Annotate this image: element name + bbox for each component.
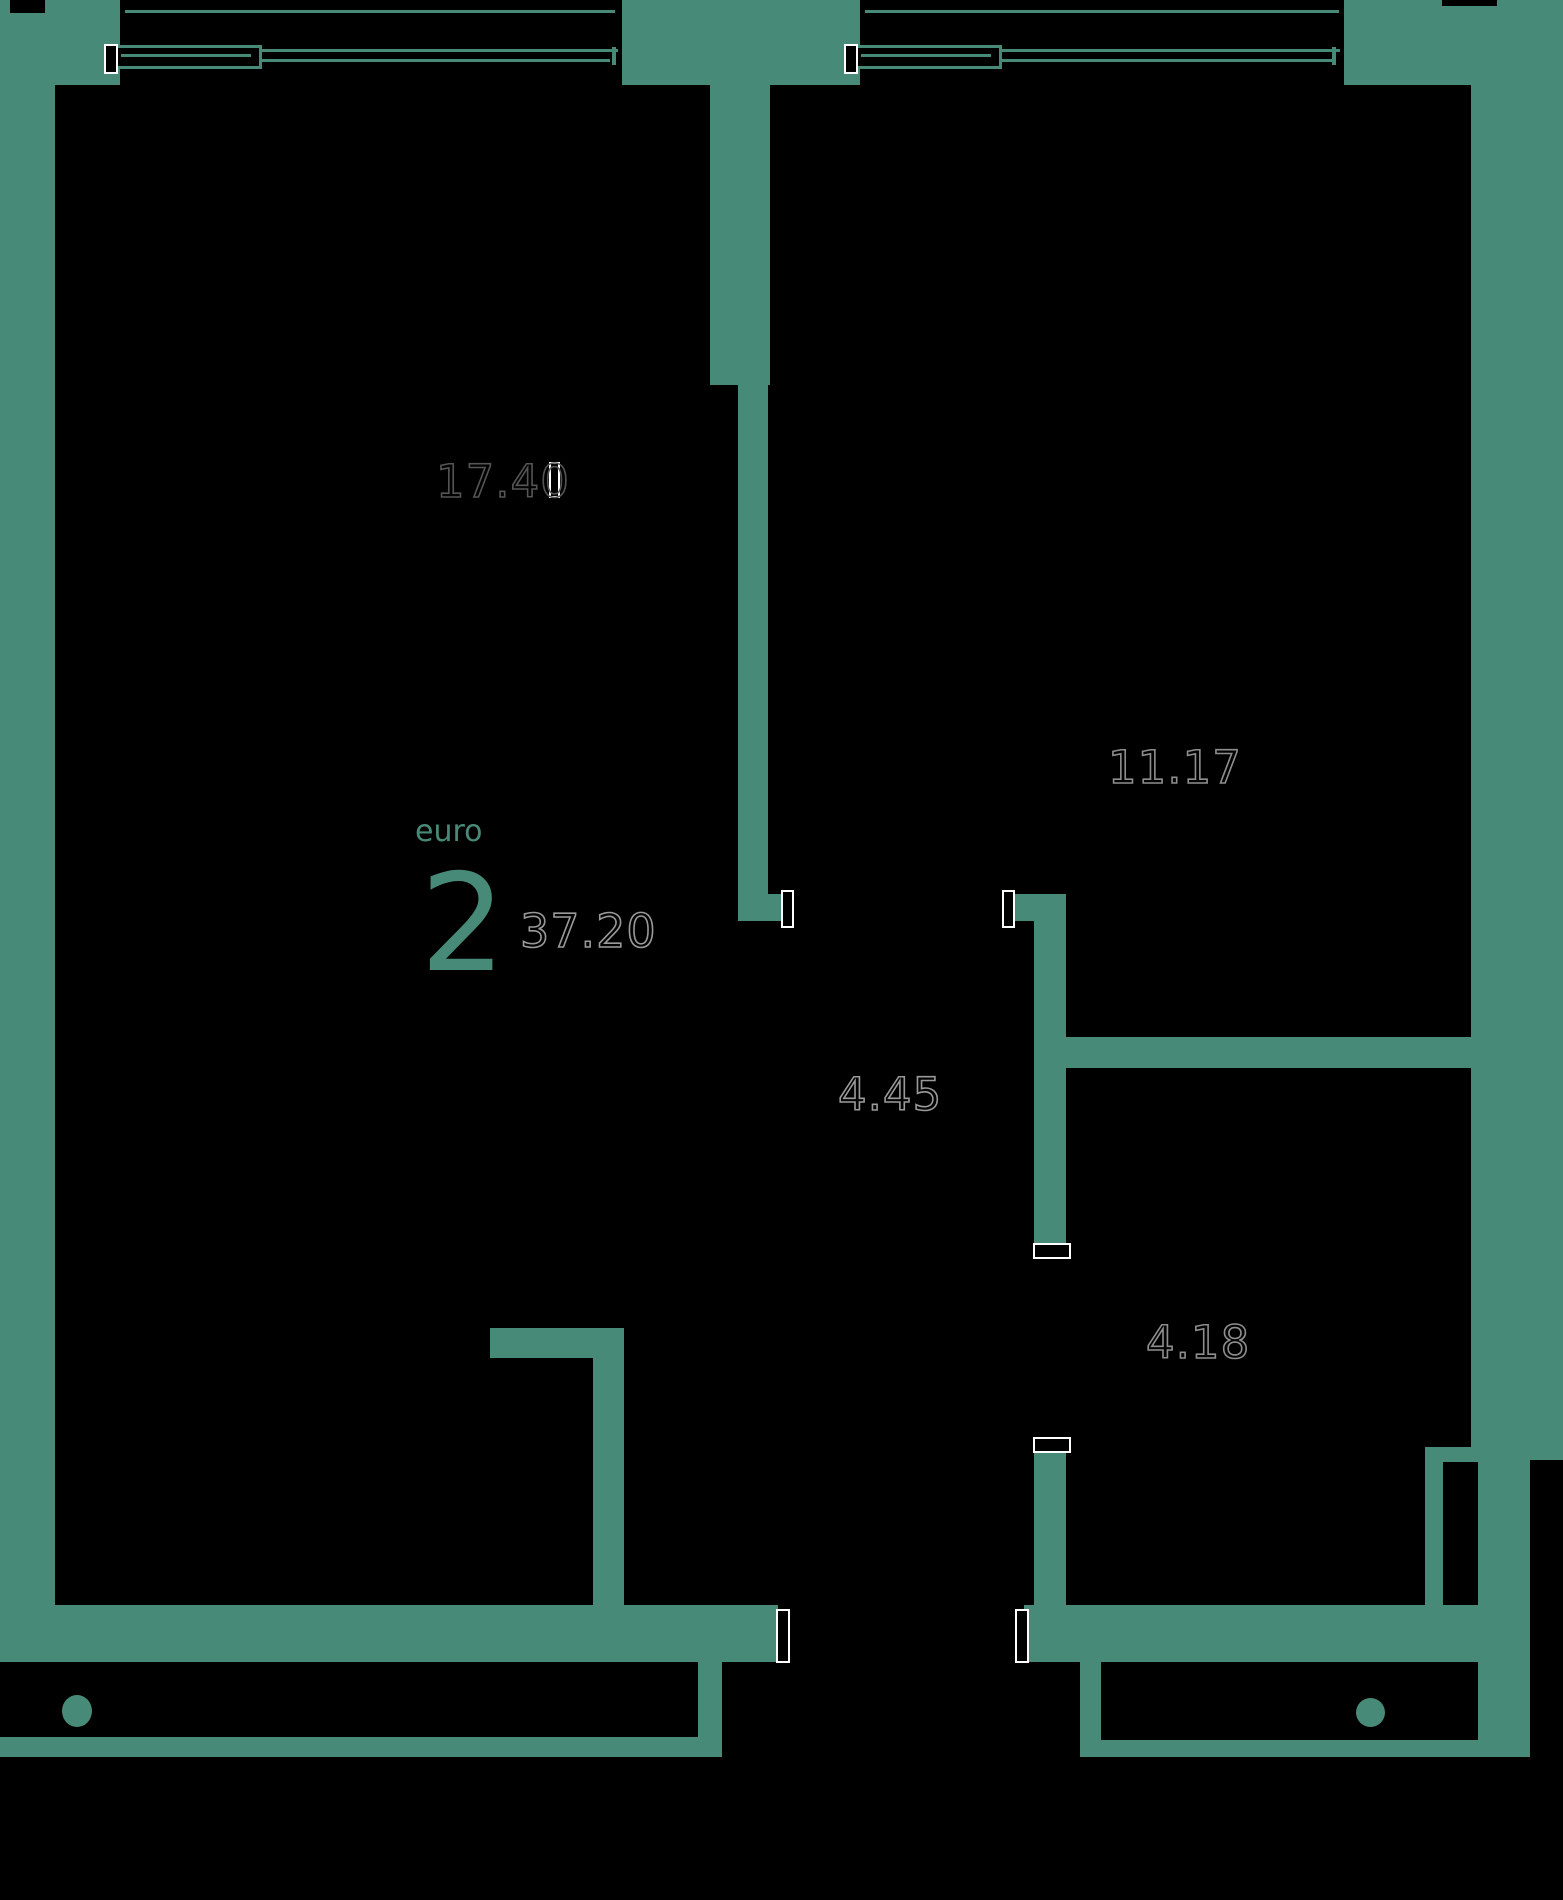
window-sill-icon <box>865 10 1339 13</box>
window-casement-icon <box>112 45 262 69</box>
floor-plan: 17.40 11.17 4.45 4.18 euro 2 37.20 <box>0 0 1563 1900</box>
door-frame-icon <box>1002 890 1015 928</box>
room-area-label-bedroom: 11.17 <box>1108 741 1242 794</box>
wall-top-middle <box>622 0 860 85</box>
balcony-dot-icon <box>62 1695 92 1727</box>
duct-shaft <box>1443 1462 1478 1607</box>
window-casement-inner <box>861 54 991 57</box>
wall-right-outer <box>1471 85 1563 1460</box>
unit-total-area-label: 37.20 <box>520 904 657 958</box>
window-end-cap-icon <box>1332 47 1336 65</box>
window-sill-icon <box>125 10 615 13</box>
room-area-label-hallway: 4.45 <box>838 1068 942 1121</box>
wall-duct-left <box>1425 1447 1443 1607</box>
wall-notch <box>1442 0 1497 6</box>
wall-right-outer-lower <box>1478 1460 1530 1757</box>
window-icon <box>256 59 610 62</box>
door-frame-icon <box>781 890 794 928</box>
wall-balcony-right-bottom <box>1080 1740 1530 1757</box>
wall-partition-upper <box>710 85 770 385</box>
wall-nook-horizontal <box>490 1328 624 1358</box>
unit-type-label: euro <box>415 814 483 849</box>
wall-left-outer <box>0 85 55 1662</box>
wall-bathroom-left-lower <box>1034 1440 1066 1607</box>
wall-bottom-left <box>0 1605 778 1662</box>
wall-bottom-right <box>1024 1605 1478 1662</box>
window-end-cap-icon <box>612 47 616 65</box>
wall-notch <box>10 0 45 13</box>
entrance-door-frame-icon <box>1015 1609 1029 1663</box>
wall-balcony-left-bottom <box>0 1737 722 1757</box>
window-icon <box>996 59 1336 62</box>
door-frame-icon <box>1033 1243 1071 1259</box>
window-casement-inner <box>121 54 251 57</box>
window-bracket-icon <box>844 44 858 74</box>
wall-partition-lower <box>738 385 768 921</box>
balcony-dot-icon <box>1356 1698 1385 1727</box>
unit-rooms-number: 2 <box>420 856 506 991</box>
wall-nook-vertical <box>593 1358 624 1607</box>
room-area-label-living: 17.40 <box>436 455 570 508</box>
wall-bathroom-left-upper <box>1034 1068 1066 1255</box>
wall-bathroom-top <box>1034 1037 1471 1068</box>
room-area-label-bathroom: 4.18 <box>1146 1316 1250 1369</box>
wall-top-right <box>1344 0 1563 85</box>
window-casement-icon <box>852 45 1002 69</box>
entrance-door-frame-icon <box>776 1609 790 1663</box>
door-frame-icon <box>1033 1437 1071 1453</box>
window-bracket-icon <box>104 44 118 74</box>
